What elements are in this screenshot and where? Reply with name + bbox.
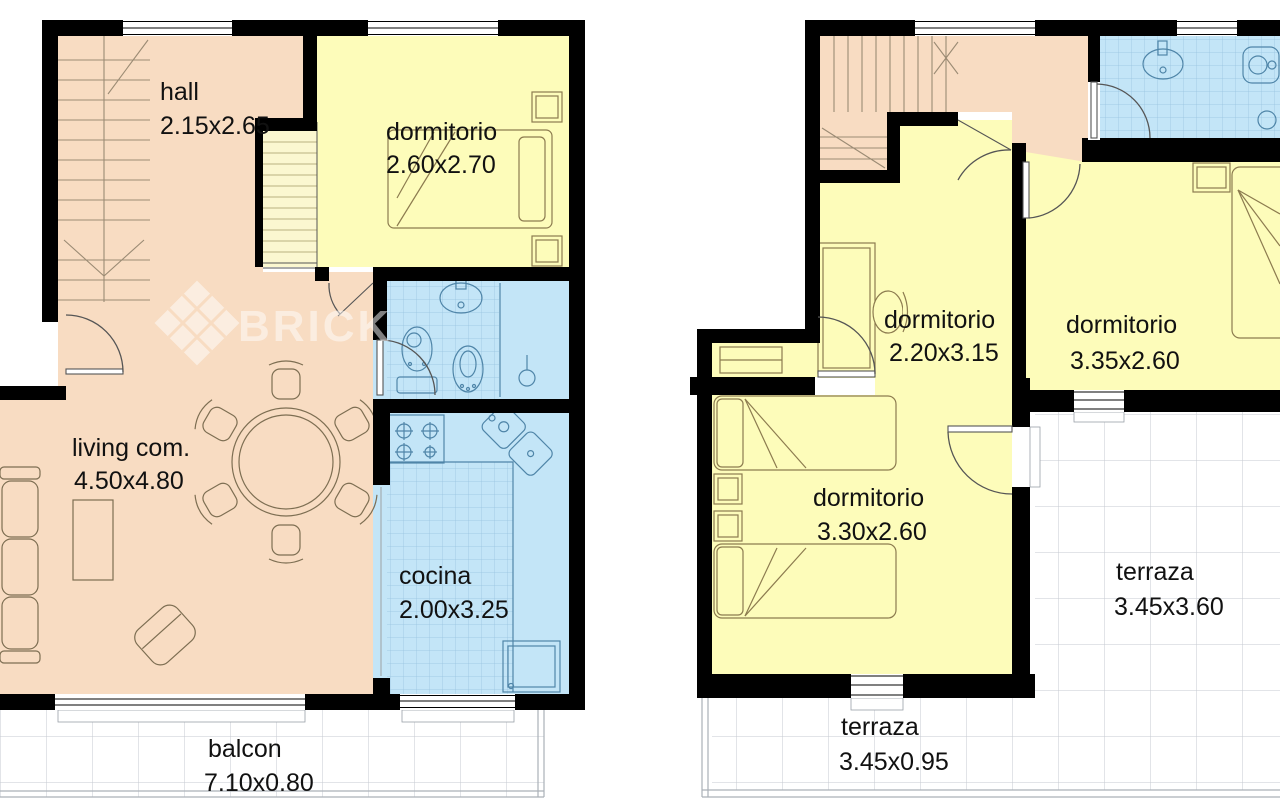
room-dims-cocina: 2.00x3.25 (399, 596, 509, 624)
window (1074, 390, 1124, 412)
room-dims-terraza-1: 3.45x3.60 (1114, 593, 1224, 621)
room-dims-terraza-2: 3.45x0.95 (839, 748, 949, 776)
window-sill (402, 710, 514, 722)
room-label-dormitorio: dormitorio (386, 118, 497, 146)
room-label-living: living com. (72, 434, 190, 462)
room-dims-dormitorio-2: 3.35x2.60 (1070, 347, 1180, 375)
sofa-icon (0, 467, 40, 663)
bed-icon (714, 396, 896, 470)
bathroom-2-tiles (1100, 36, 1280, 143)
window (915, 20, 1035, 36)
room-dims-dormitorio-3: 3.30x2.60 (817, 518, 927, 546)
room-dims-balcon: 7.10x0.80 (204, 769, 314, 797)
room-opening-fill (875, 377, 1012, 395)
room-dims-hall: 2.15x2.65 (160, 112, 270, 140)
room-label-hall: hall (160, 78, 199, 106)
window (400, 694, 515, 710)
room-dims-dormitorio: 2.60x2.70 (386, 151, 496, 179)
balcony-threshold (58, 710, 305, 722)
window (851, 674, 903, 698)
door-threshold (1030, 427, 1040, 487)
window (1177, 20, 1237, 36)
room-label-balcon: balcon (208, 735, 282, 763)
room-label-terraza-2: terraza (841, 713, 919, 741)
entry-opening (42, 322, 58, 386)
window-sill (1074, 412, 1124, 422)
room-label-terraza-1: terraza (1116, 558, 1194, 586)
brick-watermark-text: BRICK (238, 302, 392, 351)
left-floor-plan: hall 2.15x2.65 dormitorio 2.60x2.70 livi… (0, 20, 585, 797)
nightstand-icon (1193, 163, 1230, 192)
window (368, 20, 498, 36)
room-dims-dormitorio-1: 2.20x3.15 (889, 339, 999, 367)
balcony-door (55, 694, 305, 710)
room-label-dormitorio-3: dormitorio (813, 484, 924, 512)
window-sill (851, 698, 903, 710)
floorplan-page: hall 2.15x2.65 dormitorio 2.60x2.70 livi… (0, 0, 1280, 800)
room-label-dormitorio-1: dormitorio (884, 306, 995, 334)
window (123, 20, 232, 36)
room-label-dormitorio-2: dormitorio (1066, 311, 1177, 339)
stair-upper-flight (263, 131, 317, 267)
dining-table-icon (232, 408, 340, 516)
desk-icon (818, 243, 875, 373)
floorplan-drawing: hall 2.15x2.65 dormitorio 2.60x2.70 livi… (0, 0, 1280, 800)
bed-icon (714, 544, 896, 618)
wardrobe-icon (720, 347, 782, 373)
room-dims-living: 4.50x4.80 (74, 467, 184, 495)
bed-icon (1232, 167, 1280, 338)
room-label-cocina: cocina (399, 562, 471, 590)
